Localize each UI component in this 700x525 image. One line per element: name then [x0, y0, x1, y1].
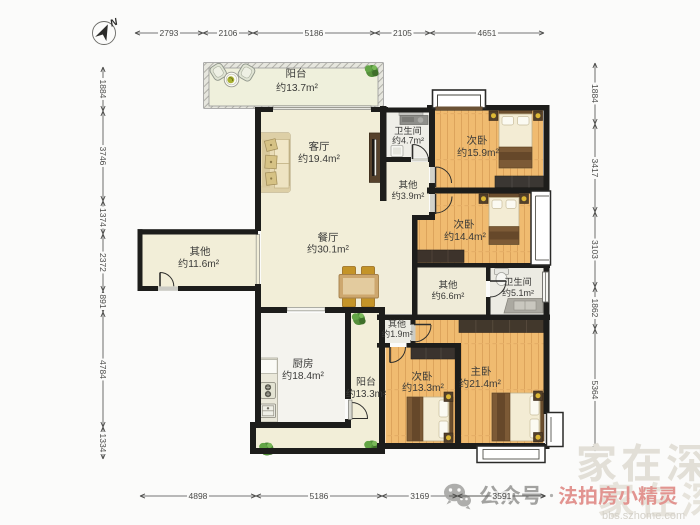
svg-text:18.4m²: 18.4m²: [292, 371, 324, 382]
svg-text:5186: 5186: [305, 28, 324, 38]
svg-text:4651: 4651: [478, 28, 497, 38]
svg-text:5364: 5364: [590, 381, 600, 400]
svg-text:891: 891: [98, 294, 108, 308]
svg-text:1862: 1862: [590, 299, 600, 318]
svg-text:4784: 4784: [98, 360, 108, 379]
svg-text:5186: 5186: [310, 491, 329, 501]
svg-text:13.3m²: 13.3m²: [412, 383, 444, 394]
svg-text:1374: 1374: [98, 208, 108, 227]
svg-text:3169: 3169: [410, 491, 429, 501]
svg-text:11.6m²: 11.6m²: [188, 259, 220, 270]
svg-text:13.7m²: 13.7m²: [286, 83, 318, 94]
svg-text:30.1m²: 30.1m²: [317, 245, 349, 256]
svg-text:2372: 2372: [98, 253, 108, 272]
svg-text:3417: 3417: [590, 159, 600, 178]
svg-text:2106: 2106: [219, 28, 238, 38]
svg-text:14.4m²: 14.4m²: [454, 232, 486, 243]
svg-text:15.9m²: 15.9m²: [467, 148, 499, 159]
svg-text:6.6m²: 6.6m²: [441, 291, 465, 301]
svg-text:1334: 1334: [98, 434, 108, 453]
svg-text:19.4m²: 19.4m²: [308, 154, 340, 165]
svg-text:13.3m²: 13.3m²: [356, 389, 387, 400]
svg-text:1884: 1884: [98, 80, 108, 99]
svg-text:1.9m²: 1.9m²: [390, 329, 413, 339]
svg-text:3746: 3746: [98, 147, 108, 166]
svg-text:4898: 4898: [189, 491, 208, 501]
svg-text:1884: 1884: [590, 84, 600, 103]
svg-text:5.1m²: 5.1m²: [511, 288, 534, 298]
svg-text:3103: 3103: [590, 240, 600, 259]
svg-text:3.9m²: 3.9m²: [401, 191, 425, 201]
svg-text:2105: 2105: [393, 28, 412, 38]
svg-text:3591: 3591: [493, 491, 512, 501]
svg-text:bbs.szhome.com: bbs.szhome.com: [602, 510, 685, 522]
svg-text:4.7m²: 4.7m²: [401, 136, 424, 146]
svg-text:21.4m²: 21.4m²: [469, 379, 501, 390]
svg-text:2793: 2793: [160, 28, 179, 38]
